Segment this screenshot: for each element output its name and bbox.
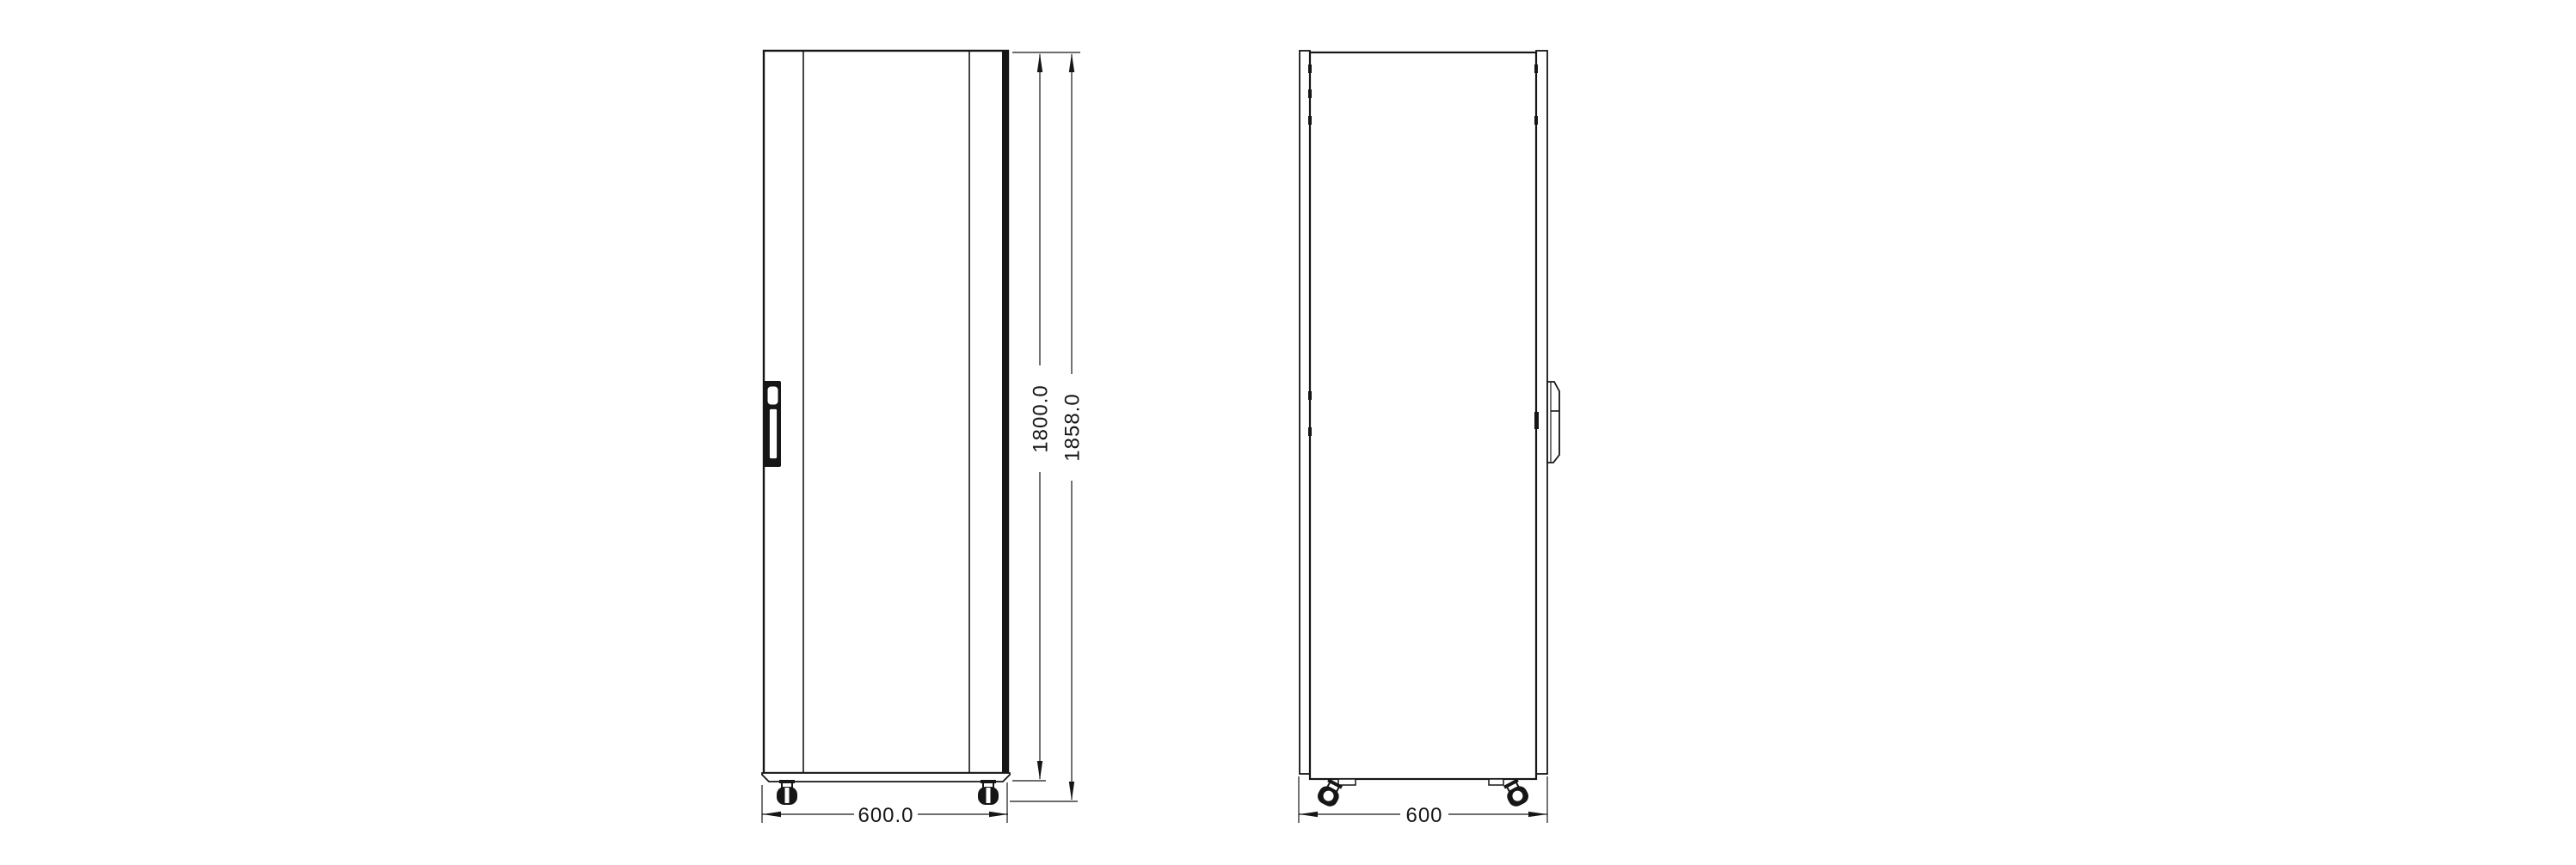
- arrow-right: [989, 812, 1008, 817]
- side-view: [1300, 51, 1559, 809]
- side-depth-label: 600: [1405, 804, 1442, 827]
- side-front-door-edge: [1300, 51, 1310, 774]
- side-caster-bracket-left: [1338, 779, 1356, 785]
- dimension-width-600: 600.0: [762, 804, 1008, 827]
- side-panel-body: [1310, 52, 1536, 779]
- arrow-down: [1037, 761, 1042, 780]
- arrow-left: [762, 812, 781, 817]
- front-base-plate: [762, 773, 1010, 782]
- front-cabinet-body: [764, 51, 1008, 773]
- front-hinge-edge-band: [1002, 51, 1009, 773]
- front-view: [762, 51, 1010, 805]
- cabinet-dimension-drawing: 600.0 1800.0 1858.0: [0, 0, 2576, 861]
- dimension-total-height-1858: 1858.0: [1061, 53, 1085, 801]
- front-width-label: 600.0: [858, 804, 913, 827]
- front-caster-right: [978, 780, 999, 805]
- side-caster-right: [1501, 777, 1531, 809]
- front-handle-slot: [769, 408, 778, 459]
- arrow-up: [1037, 53, 1042, 72]
- arrow-down: [1069, 782, 1074, 801]
- front-caster-left: [777, 780, 797, 805]
- arrow-right: [1528, 812, 1547, 817]
- side-door-handle: [1547, 382, 1559, 463]
- front-body-height-label: 1800.0: [1030, 384, 1053, 452]
- front-door-handle: [763, 381, 781, 467]
- drawing-canvas: 600.0 1800.0 1858.0: [0, 0, 2576, 861]
- side-caster-bracket-right: [1489, 779, 1503, 785]
- side-lock-mark: [1534, 412, 1539, 429]
- arrow-up: [1069, 53, 1074, 72]
- dimension-depth-600: 600: [1299, 804, 1547, 827]
- front-total-height-label: 1858.0: [1061, 393, 1085, 461]
- dimension-body-height-1800: 1800.0: [1030, 53, 1053, 780]
- front-handle-knob: [767, 386, 779, 406]
- arrow-left: [1299, 812, 1318, 817]
